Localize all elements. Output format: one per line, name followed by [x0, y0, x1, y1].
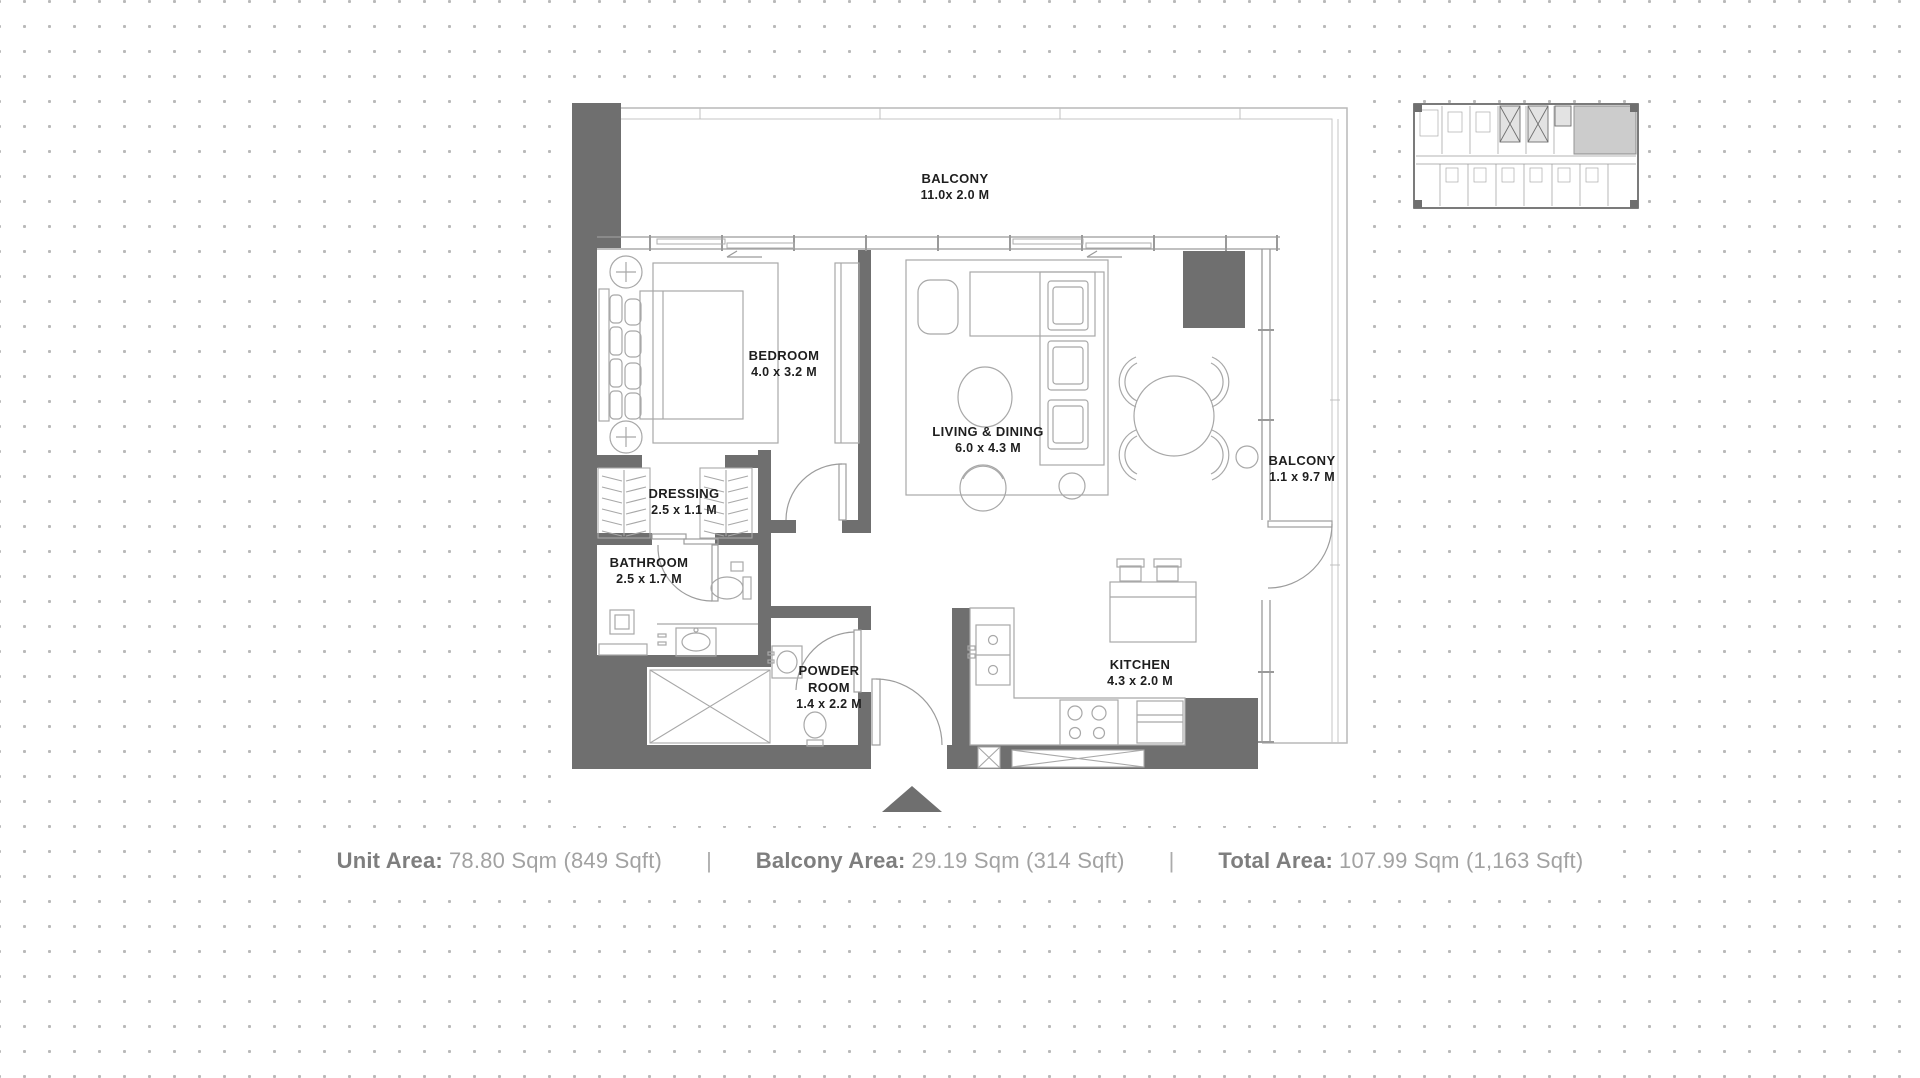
room-name: BALCONY: [1268, 452, 1335, 469]
area-summary-row: Unit Area:78.80 Sqm (849 Sqft) | Balcony…: [0, 840, 1920, 882]
total-area-label: Total Area:: [1218, 848, 1333, 873]
bedroom-furniture: [599, 256, 859, 453]
area-summary: Unit Area:78.80 Sqm (849 Sqft) | Balcony…: [307, 840, 1614, 882]
room-dims: 1.1 x 9.7 M: [1268, 469, 1335, 486]
summary-separator: |: [706, 848, 712, 874]
unit-area-value: 78.80 Sqm (849 Sqft): [449, 848, 662, 873]
room-name: KITCHEN: [1107, 656, 1173, 673]
room-dims: 1.4 x 2.2 M: [785, 696, 873, 713]
room-name: POWDER ROOM: [785, 662, 873, 696]
room-label-dressing: DRESSING 2.5 x 1.1 M: [648, 485, 719, 519]
dining-set: [1119, 357, 1229, 480]
entrance-arrow: [882, 786, 942, 812]
room-dims: 2.5 x 1.7 M: [610, 571, 689, 588]
room-dims: 2.5 x 1.1 M: [648, 502, 719, 519]
balcony-area-value: 29.19 Sqm (314 Sqft): [912, 848, 1125, 873]
total-area-value: 107.99 Sqm (1,163 Sqft): [1339, 848, 1583, 873]
unit-area-label: Unit Area:: [337, 848, 443, 873]
balcony-area: Balcony Area:29.19 Sqm (314 Sqft): [756, 848, 1125, 874]
room-label-bathroom: BATHROOM 2.5 x 1.7 M: [610, 554, 689, 588]
room-dims: 4.3 x 2.0 M: [1107, 673, 1173, 690]
summary-separator: |: [1169, 848, 1175, 874]
room-dims: 11.0x 2.0 M: [921, 187, 990, 204]
room-name: BALCONY: [921, 170, 990, 187]
room-label-balcony-right: BALCONY 1.1 x 9.7 M: [1268, 452, 1335, 486]
room-label-living-dining: LIVING & DINING 6.0 x 4.3 M: [932, 423, 1043, 457]
room-dims: 6.0 x 4.3 M: [932, 440, 1043, 457]
room-name: BEDROOM: [749, 347, 820, 364]
key-plan-highlighted-unit: [1574, 106, 1636, 154]
room-name: BATHROOM: [610, 554, 689, 571]
kitchen-fixtures: [968, 559, 1196, 745]
room-name: LIVING & DINING: [932, 423, 1043, 440]
room-label-kitchen: KITCHEN 4.3 x 2.0 M: [1107, 656, 1173, 690]
floorplan-page: { "plan": { "rooms": [ {"name": "BALCONY…: [0, 0, 1920, 1078]
room-label-powder-room: POWDER ROOM 1.4 x 2.2 M: [785, 662, 873, 713]
room-dims: 4.0 x 3.2 M: [749, 364, 820, 381]
room-label-bedroom: BEDROOM 4.0 x 3.2 M: [749, 347, 820, 381]
unit-area: Unit Area:78.80 Sqm (849 Sqft): [337, 848, 662, 874]
room-name: DRESSING: [648, 485, 719, 502]
room-label-balcony-top: BALCONY 11.0x 2.0 M: [921, 170, 990, 204]
key-plan: [1412, 96, 1640, 214]
balcony-area-label: Balcony Area:: [756, 848, 906, 873]
total-area: Total Area:107.99 Sqm (1,163 Sqft): [1218, 848, 1583, 874]
